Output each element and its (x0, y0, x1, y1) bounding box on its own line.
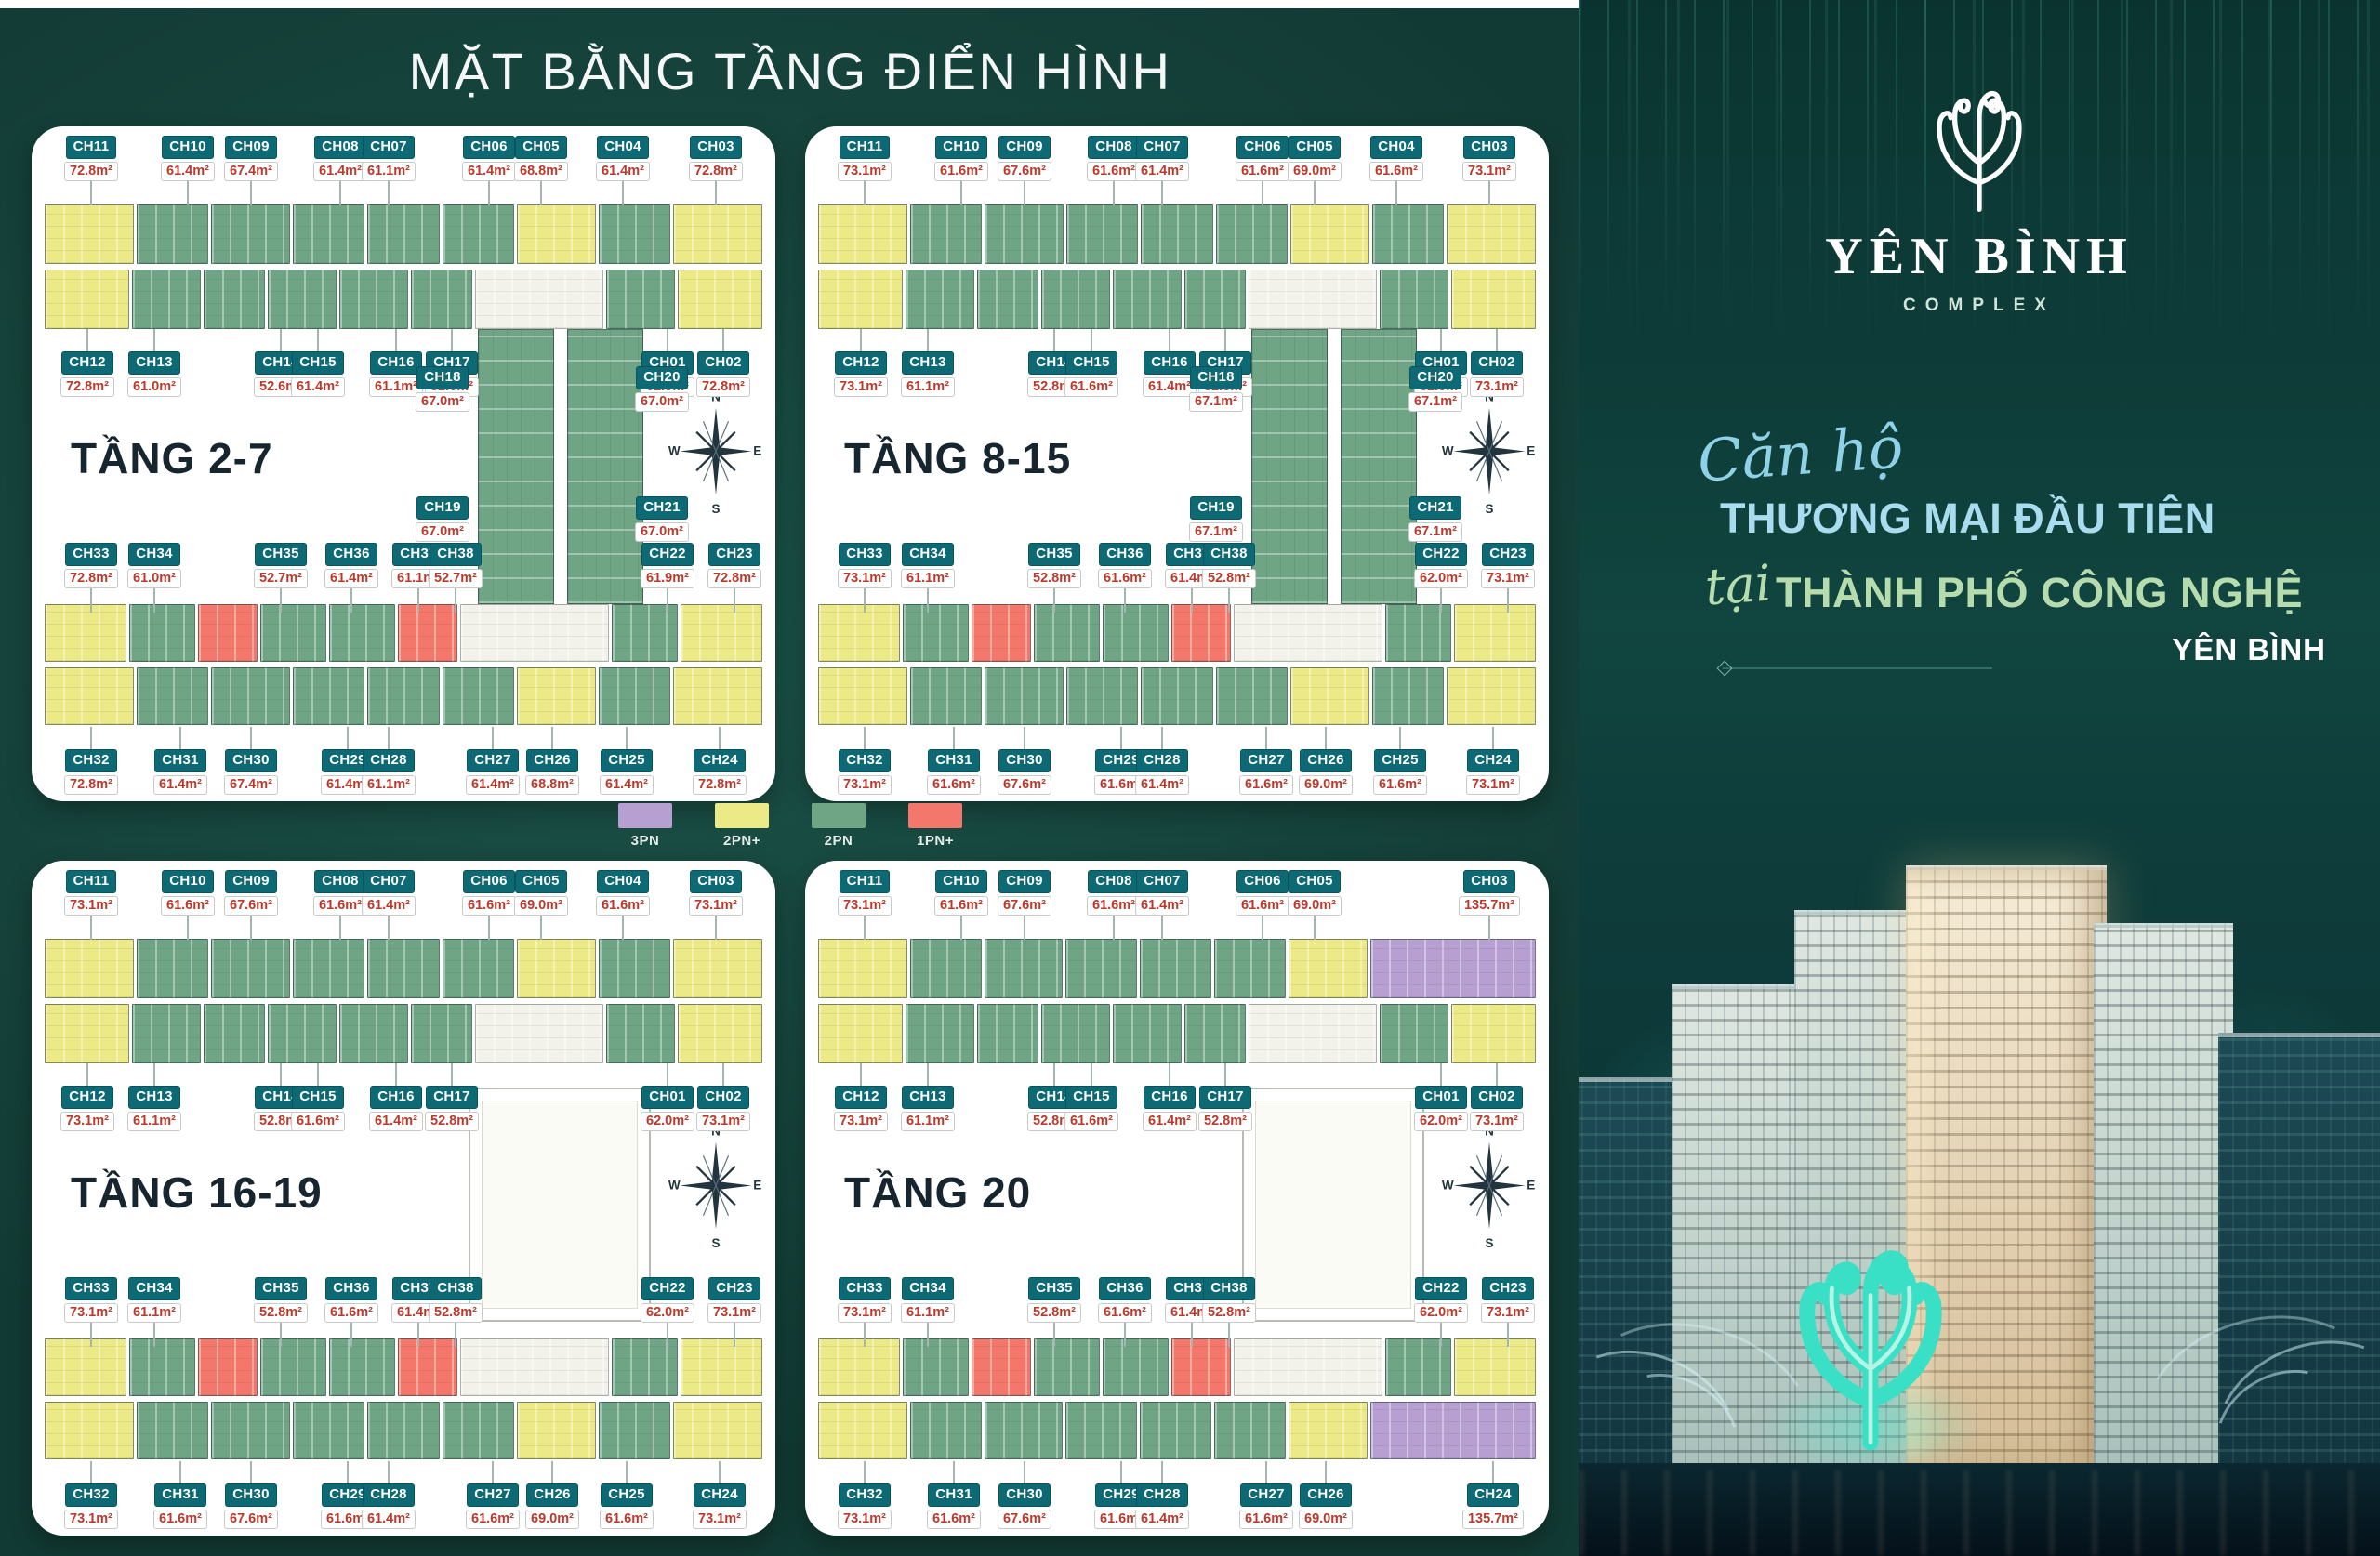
unit-label-ch20: CH2067.0m² (635, 366, 689, 412)
unit-label-ch28: CH2861.4m² (1135, 727, 1189, 795)
unit-area: 72.8m² (696, 377, 750, 397)
unit-area-cell (1140, 1402, 1211, 1459)
leader-line (1496, 329, 1498, 351)
unit-area-cell (977, 270, 1038, 329)
unit-area: 73.1m² (838, 1510, 892, 1529)
leader-line (927, 1323, 929, 1347)
brand-subtitle: COMPLEX (1903, 296, 2056, 316)
unit-code: CH12 (61, 351, 113, 375)
unit-label-ch34: CH3461.1m² (901, 1277, 955, 1347)
unit-code: CH03 (690, 136, 742, 159)
unit-label-ch35: CH3552.8m² (1027, 1277, 1081, 1347)
unit-area-cell (681, 1338, 762, 1396)
unit-area: 72.8m² (64, 162, 118, 181)
unit-area-cell (1290, 667, 1369, 725)
unit-label-ch08: CH0861.6m² (1087, 136, 1141, 205)
apartment-strip (818, 1338, 1536, 1396)
unit-code: CH25 (601, 749, 653, 772)
unit-area: 61.6m² (1239, 1510, 1293, 1529)
unit-area-cell (367, 667, 439, 725)
unit-area: 73.1m² (1481, 569, 1535, 588)
leader-line (864, 727, 866, 749)
unit-label-ch07: CH0761.4m² (362, 870, 416, 940)
leader-line (540, 916, 542, 940)
leader-line (1265, 727, 1267, 749)
unit-code: CH11 (840, 870, 891, 893)
core-cell (1249, 1004, 1377, 1063)
unit-area: 52.7m² (254, 569, 308, 588)
floor-title: TẦNG 16-19 (71, 1167, 323, 1218)
core-cell (460, 604, 609, 662)
unit-label-ch11: CH1173.1m² (838, 136, 892, 205)
unit-label-ch33: CH3373.1m² (838, 1277, 892, 1347)
leader-line (667, 1323, 668, 1347)
unit-area: 61.1m² (901, 569, 955, 588)
svg-text:E: E (1527, 444, 1535, 458)
legend-label: 1PN+ (917, 833, 954, 849)
leader-line (455, 588, 456, 613)
unit-label-ch11: CH1173.1m² (838, 870, 892, 940)
leader-line (715, 916, 717, 940)
unit-area-cell (137, 939, 208, 998)
unit-area: 73.1m² (838, 162, 892, 181)
unit-area: 61.6m² (1369, 162, 1423, 181)
unit-area: 67.1m² (1189, 392, 1243, 412)
unit-label-ch23: CH2373.1m² (1481, 543, 1535, 613)
apartment-strip (45, 270, 762, 329)
unit-area-cell (132, 1004, 201, 1063)
unit-label-ch27: CH2761.6m² (466, 1461, 520, 1529)
unit-area-cell (1216, 667, 1288, 725)
leader-line (1262, 916, 1263, 940)
unit-code: CH04 (597, 136, 649, 159)
unit-area: 67.6m² (998, 1510, 1051, 1529)
svg-text:E: E (753, 1179, 761, 1193)
unit-area-cell (673, 667, 762, 725)
unit-area-cell (1289, 939, 1368, 998)
unit-label-ch23: CH2373.1m² (707, 1277, 761, 1347)
unit-label-ch28: CH2861.4m² (362, 1461, 416, 1529)
unit-label-ch34: CH3461.1m² (901, 543, 955, 613)
unit-code: CH01 (1415, 1086, 1467, 1109)
unit-label-ch23: CH2373.1m² (1481, 1277, 1535, 1347)
unit-area-cell (367, 939, 439, 998)
legend-label: 3PN (631, 833, 660, 849)
center-void (1242, 1088, 1424, 1322)
unit-area: 61.4m² (1135, 162, 1189, 181)
unit-code: CH24 (694, 1483, 746, 1507)
apartment-strip (818, 667, 1536, 725)
unit-label-ch35: CH3552.8m² (254, 1277, 308, 1347)
unit-code: CH16 (1144, 1086, 1196, 1109)
unit-area-cell (1184, 1004, 1246, 1063)
leader-line (1314, 916, 1316, 940)
unit-area-cell (906, 1004, 974, 1063)
unit-area-cell (1380, 270, 1448, 329)
unit-area-cell (293, 939, 364, 998)
unit-label-ch12: CH1272.8m² (60, 329, 114, 397)
unit-area: 61.6m² (1064, 377, 1118, 397)
leader-line (1440, 329, 1442, 351)
tree-logo-icon (1901, 48, 2057, 214)
unit-area-cell (1034, 604, 1100, 662)
unit-label-ch03: CH0373.1m² (1462, 136, 1516, 205)
unit-area-cell (411, 270, 472, 329)
unit-area: 67.0m² (416, 522, 469, 542)
leader-line (86, 329, 88, 351)
unit-area: 61.6m² (1239, 775, 1293, 795)
unit-label-ch08: CH0861.6m² (313, 870, 367, 940)
unit-area: 73.1m² (696, 1112, 750, 1131)
floorplan-card-tầng-20: CH1173.1m²CH1061.6m²CH0967.6m²CH0861.6m²… (805, 861, 1549, 1536)
unit-area-cell (268, 270, 337, 329)
unit-area: 67.4m² (224, 162, 278, 181)
unit-area-cell (903, 604, 969, 662)
leader-line (960, 181, 962, 205)
unit-area-cell (443, 939, 514, 998)
unit-area-cell (678, 1004, 762, 1063)
unit-area: 61.4m² (466, 775, 520, 795)
unit-code: CH32 (839, 1483, 891, 1507)
unit-label-ch08: CH0861.6m² (1087, 870, 1141, 940)
unit-area: 73.1m² (834, 1112, 888, 1131)
unit-area: 61.6m² (466, 1510, 520, 1529)
unit-area: 52.8m² (1027, 1303, 1081, 1323)
unit-area-cell (293, 667, 364, 725)
unit-area-cell (1140, 939, 1211, 998)
unit-area-cell (517, 204, 596, 264)
unit-area: 67.6m² (224, 896, 278, 916)
apartment-strip (818, 204, 1536, 264)
floor-title: TẦNG 2-7 (71, 433, 273, 483)
unit-code: CH16 (1144, 351, 1196, 375)
unit-label-ch05: CH0569.0m² (1288, 870, 1342, 940)
unit-area: 73.1m² (838, 1303, 892, 1323)
legend-swatch (812, 803, 866, 828)
leader-line (1395, 181, 1397, 205)
leader-line (90, 181, 92, 205)
page-title: MẶT BẰNG TẦNG ĐIỂN HÌNH (0, 41, 1580, 101)
leader-line (347, 727, 349, 749)
unit-code: CH28 (363, 1483, 415, 1507)
leader-line (395, 329, 397, 351)
unit-area-cell (678, 270, 762, 329)
unit-area-cell (1372, 204, 1444, 264)
unit-label-ch30: CH3067.6m² (998, 1461, 1051, 1529)
unit-area: 61.4m² (313, 162, 367, 181)
unit-label-ch13: CH1361.1m² (901, 329, 955, 397)
spine-block-east (567, 329, 643, 604)
unit-code: CH01 (641, 1086, 694, 1109)
unit-area: 61.6m² (153, 1510, 207, 1529)
unit-area: 52.8m² (1202, 569, 1256, 588)
unit-area: 72.8m² (64, 569, 118, 588)
unit-label-ch26: CH2669.0m² (525, 1461, 579, 1529)
unit-code: CH13 (902, 1086, 954, 1109)
unit-label-ch25: CH2561.6m² (1373, 727, 1427, 795)
unit-label-ch11: CH1172.8m² (64, 136, 118, 205)
leader-line (250, 916, 252, 940)
unit-area-cell (204, 270, 265, 329)
unit-area: 61.4m² (362, 896, 416, 916)
unit-label-ch38: CH3852.8m² (1202, 1277, 1256, 1347)
water-reflections (1579, 1470, 2380, 1556)
unit-area: 73.1m² (1470, 1112, 1524, 1131)
unit-area-cell (339, 270, 408, 329)
unit-code: CH05 (1289, 136, 1341, 159)
unit-code: CH10 (935, 870, 987, 893)
unit-area-cell (818, 667, 907, 725)
unit-code: CH31 (928, 1483, 980, 1507)
unit-code: CH26 (1300, 1483, 1352, 1507)
unit-area-cell (818, 604, 900, 662)
diamond-line-decor (1723, 667, 1992, 669)
unit-label-ch03: CH03135.7m² (1459, 870, 1520, 940)
unit-code: CH02 (697, 1086, 749, 1109)
unit-label-ch26: CH2668.8m² (525, 727, 579, 795)
unit-code: CH31 (154, 1483, 206, 1507)
unit-label-ch38: CH3852.8m² (1202, 543, 1256, 613)
unit-code: CH02 (697, 351, 749, 375)
unit-label-ch03: CH0373.1m² (689, 870, 743, 940)
unit-area-cell (45, 204, 134, 264)
leader-line (1325, 1461, 1327, 1483)
leader-line (626, 1461, 628, 1483)
unit-area: 73.1m² (1470, 377, 1524, 397)
unit-area: 61.6m² (1098, 1303, 1152, 1323)
leader-line (1224, 329, 1226, 351)
unit-label-ch07: CH0761.4m² (1135, 136, 1189, 205)
unit-label-ch34: CH3461.0m² (127, 543, 181, 613)
leader-line (250, 1461, 252, 1483)
unit-area: 72.8m² (60, 377, 114, 397)
leader-line (953, 727, 955, 749)
svg-text:W: W (668, 444, 681, 458)
brand-name: YÊN BÌNH (1825, 227, 2133, 286)
south-wing (45, 604, 762, 725)
unit-code: CH15 (1065, 351, 1117, 375)
unit-code: CH25 (1374, 749, 1426, 772)
unit-label-ch30: CH3067.4m² (224, 727, 278, 795)
unit-label-ch13: CH1361.1m² (127, 1063, 181, 1131)
unit-area: 61.9m² (641, 569, 694, 588)
leader-line (1053, 1323, 1055, 1347)
unit-area-cell (673, 939, 762, 998)
unit-area-cell (606, 270, 675, 329)
unit-area-cell (985, 204, 1064, 264)
unit-area: 68.8m² (514, 162, 568, 181)
unit-label-ch05: CH0569.0m² (1288, 136, 1342, 205)
leader-line (388, 1461, 390, 1483)
unit-code: CH12 (835, 351, 887, 375)
unit-code: CH16 (370, 351, 422, 375)
apartment-strip (45, 604, 762, 662)
unit-area-cell (198, 1338, 258, 1396)
unit-code: CH35 (1028, 1277, 1080, 1300)
unit-code: CH18 (1190, 366, 1242, 389)
unit-area-cell (45, 270, 129, 329)
unit-code: CH02 (1471, 1086, 1523, 1109)
svg-text:E: E (1527, 1179, 1535, 1193)
unit-label-ch31: CH3161.4m² (153, 727, 207, 795)
unit-area: 61.6m² (1236, 896, 1289, 916)
leader-line (1120, 727, 1122, 749)
unit-area-cell (137, 204, 208, 264)
unit-area-cell (1041, 1004, 1110, 1063)
unit-area: 73.1m² (1462, 162, 1516, 181)
unit-label-ch12: CH1273.1m² (60, 1063, 114, 1131)
unit-area-cell (45, 604, 126, 662)
leader-line (1161, 1461, 1163, 1483)
unit-code: CH12 (61, 1086, 113, 1109)
leader-line (1191, 588, 1193, 613)
unit-area: 67.4m² (224, 775, 278, 795)
unit-code: CH21 (1409, 496, 1461, 520)
leader-line (250, 727, 252, 749)
unit-area: 61.0m² (127, 569, 181, 588)
unit-code: CH10 (162, 136, 214, 159)
unit-label-ch12: CH1273.1m² (834, 1063, 888, 1131)
unit-code: CH38 (1203, 543, 1255, 566)
unit-area: 61.1m² (127, 1112, 181, 1131)
leader-line (719, 1461, 721, 1483)
unit-label-ch18: CH1867.0m² (416, 366, 469, 412)
unit-area-cell (906, 270, 974, 329)
unit-area-cell (1214, 1402, 1286, 1459)
leader-line (1120, 1461, 1122, 1483)
leader-line (1169, 1063, 1170, 1086)
hero-tree-graphic (1748, 1179, 1993, 1457)
leader-line (734, 1323, 735, 1347)
unit-code: CH20 (1409, 366, 1461, 389)
unit-code: CH22 (1415, 1277, 1467, 1300)
legend-item-2pnplus: 2PN+ (715, 803, 769, 849)
unit-area: 67.1m² (1189, 522, 1243, 542)
unit-code: CH11 (66, 870, 117, 893)
tagline-line3: YÊN BÌNH (2172, 632, 2326, 667)
leader-line (492, 1461, 494, 1483)
unit-label-ch36: CH3661.4m² (324, 543, 378, 613)
unit-area-cell (1066, 204, 1138, 264)
unit-area-cell (1385, 1338, 1451, 1396)
unit-area: 67.6m² (998, 162, 1051, 181)
unit-area: 67.1m² (1408, 522, 1462, 542)
floor-title: TẦNG 20 (844, 1167, 1031, 1218)
unit-label-ch09: CH0967.6m² (998, 136, 1051, 205)
unit-area: 69.0m² (1299, 775, 1353, 795)
apartment-strip (818, 604, 1536, 662)
unit-area: 61.6m² (1064, 1112, 1118, 1131)
unit-label-ch20: CH2067.1m² (1408, 366, 1462, 412)
unit-area: 52.8m² (425, 1112, 479, 1131)
unit-code: CH19 (416, 496, 469, 520)
unit-area-cell (1065, 1402, 1137, 1459)
unit-area-cell (673, 204, 762, 264)
unit-area: 69.0m² (1299, 1510, 1353, 1529)
unit-area: 61.4m² (291, 377, 345, 397)
unit-area: 73.1m² (838, 569, 892, 588)
unit-area: 68.8m² (525, 775, 579, 795)
unit-area: 61.4m² (324, 569, 378, 588)
leader-line (1053, 1063, 1055, 1086)
leader-line (1161, 916, 1163, 940)
unit-area: 73.1m² (838, 775, 892, 795)
unit-area-cell (1451, 270, 1536, 329)
unit-label-ch33: CH3373.1m² (838, 543, 892, 613)
unit-area: 69.0m² (1288, 896, 1342, 916)
unit-label-ch24: CH2473.1m² (1466, 727, 1520, 795)
unit-area-cell (1103, 1338, 1169, 1396)
leader-line (1507, 588, 1509, 613)
leader-line (715, 181, 717, 205)
leader-line (1224, 1063, 1226, 1086)
unit-code: CH09 (225, 870, 277, 893)
unit-area-cell (818, 939, 907, 998)
unit-area-cell (198, 604, 258, 662)
leader-line (153, 1323, 155, 1347)
apartment-strip (818, 1004, 1536, 1063)
leader-line (1191, 1323, 1193, 1347)
leader-line (395, 1063, 397, 1086)
leader-line (339, 916, 341, 940)
leader-line (1440, 1063, 1442, 1086)
unit-label-ch22: CH2262.0m² (641, 1277, 694, 1347)
leader-line (90, 1323, 92, 1347)
unit-area-cell (818, 1004, 903, 1063)
leader-line (960, 916, 962, 940)
spine-block-east (1341, 329, 1417, 604)
leader-line (488, 181, 490, 205)
unit-area-cell (411, 1004, 472, 1063)
unit-area: 61.4m² (1135, 896, 1189, 916)
unit-area-cell (1041, 270, 1110, 329)
unit-code: CH07 (1136, 136, 1188, 159)
unit-label-ch21: CH2167.1m² (1408, 496, 1462, 542)
unit-label-ch04: CH0461.6m² (596, 870, 650, 940)
unit-area-cell (211, 667, 290, 725)
unit-code: CH34 (902, 1277, 954, 1300)
unit-area-cell (673, 1402, 762, 1459)
leader-line (90, 916, 92, 940)
unit-area: 62.0m² (1414, 1303, 1468, 1323)
unit-label-ch24: CH24135.7m² (1462, 1461, 1524, 1529)
leader-line (860, 329, 862, 351)
unit-code: CH35 (255, 1277, 307, 1300)
unit-area: 73.1m² (834, 377, 888, 397)
unit-area: 73.1m² (838, 896, 892, 916)
unit-label-ch09: CH0967.6m² (998, 870, 1051, 940)
leader-line (417, 1323, 419, 1347)
unit-area-cell (45, 1402, 134, 1459)
leader-line (90, 1461, 92, 1483)
unit-area-cell (367, 204, 439, 264)
unit-label-ch30: CH3067.6m² (224, 1461, 278, 1529)
floor-title: TẦNG 8-15 (844, 433, 1071, 483)
leader-line (451, 329, 453, 351)
unit-label-ch32: CH3273.1m² (838, 1461, 892, 1529)
unit-area-cell (443, 1402, 514, 1459)
unit-code: CH28 (1136, 1483, 1188, 1507)
unit-code: CH24 (1467, 1483, 1519, 1507)
unit-label-ch06: CH0661.6m² (462, 870, 516, 940)
unit-area: 62.0m² (1414, 569, 1468, 588)
unit-area-cell (517, 1402, 596, 1459)
unit-area-cell (129, 604, 195, 662)
unit-label-ch27: CH2761.6m² (1239, 727, 1293, 795)
unit-label-ch32: CH3272.8m² (64, 727, 118, 795)
unit-area: 73.1m² (60, 1112, 114, 1131)
south-wing (818, 604, 1536, 725)
